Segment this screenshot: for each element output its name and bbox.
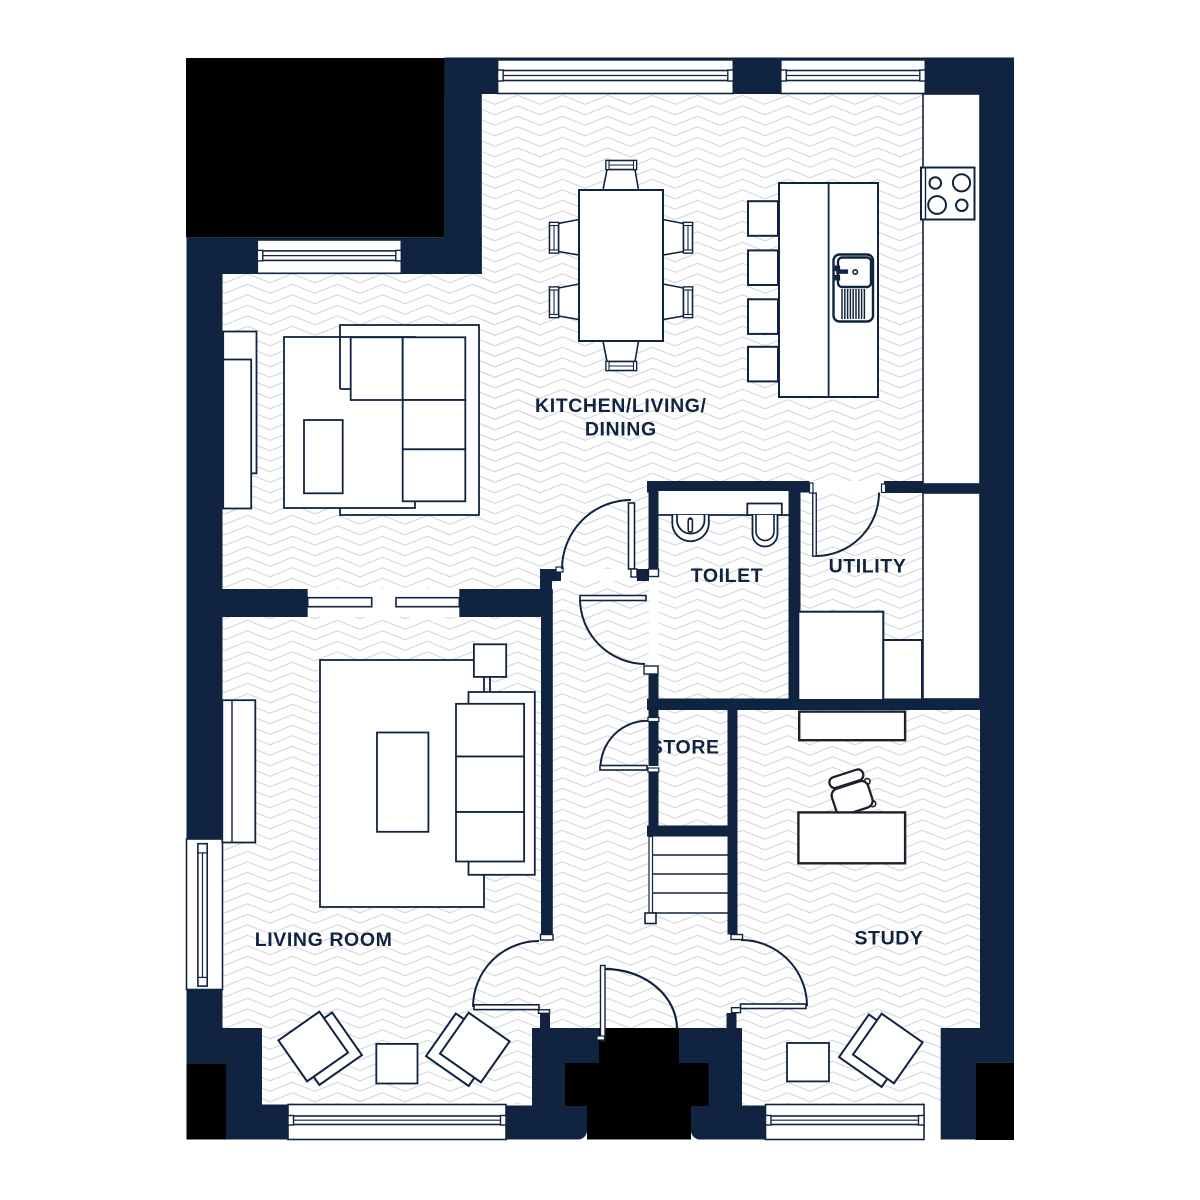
svg-text:LIVING ROOM: LIVING ROOM [255,929,393,951]
svg-text:DINING: DINING [585,419,657,441]
svg-text:STORE: STORE [650,737,720,759]
svg-text:TOILET: TOILET [691,565,764,587]
svg-text:STUDY: STUDY [854,928,923,950]
svg-text:KITCHEN/LIVING/: KITCHEN/LIVING/ [535,395,707,417]
svg-text:UTILITY: UTILITY [829,556,907,578]
